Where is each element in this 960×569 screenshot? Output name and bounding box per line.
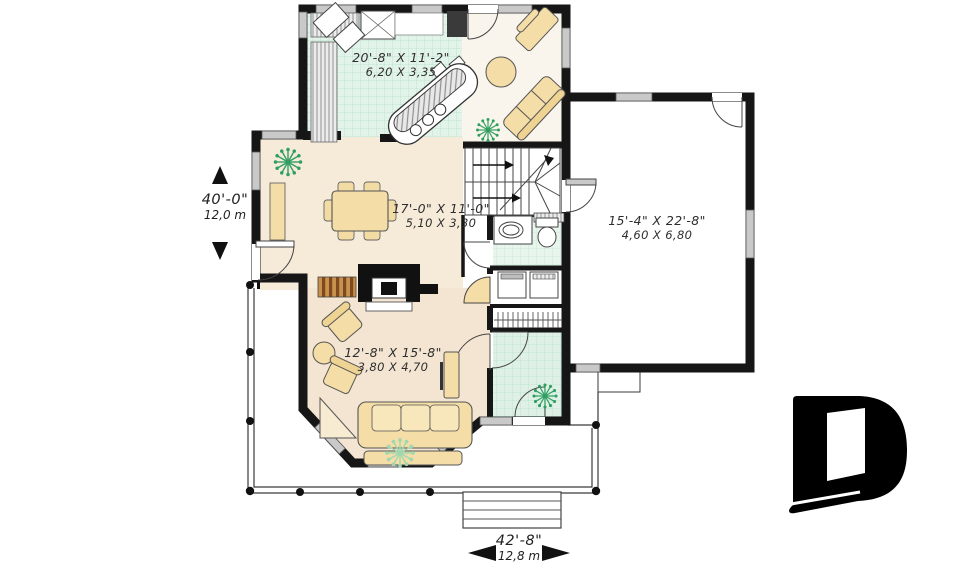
living-dim-imperial: 12'-8" X 15'-8" bbox=[344, 346, 442, 361]
hall-door-leaf bbox=[464, 277, 490, 303]
living-dimensions-label: 12'-8" X 15'-8" 3,80 X 4,70 bbox=[344, 346, 442, 374]
bathroom-door-swing bbox=[464, 242, 490, 268]
bathroom bbox=[494, 213, 564, 247]
dining-table-set bbox=[324, 182, 396, 240]
garage-dim-metric: 4,60 X 6,80 bbox=[608, 229, 706, 243]
overall-depth-label: 40'-0" 12,0 m bbox=[202, 192, 249, 222]
front-steps bbox=[463, 492, 561, 528]
drummond-logo bbox=[789, 396, 907, 513]
firewood-storage bbox=[318, 277, 356, 297]
buffet bbox=[270, 183, 285, 240]
kitchen-counter-left bbox=[311, 42, 337, 142]
dining-dimensions-label: 17'-0" X 11'-0" 5,10 X 3,30 bbox=[392, 202, 490, 230]
floor-plan-drawing bbox=[0, 0, 960, 569]
garage-dim-imperial: 15'-4" X 22'-8" bbox=[608, 214, 706, 229]
overall-width-label: 42'-8" 12,8 m bbox=[496, 533, 543, 563]
toilet-bowl bbox=[538, 227, 556, 247]
depth-metric: 12,0 m bbox=[202, 208, 249, 222]
dining-dim-imperial: 17'-0" X 11'-0" bbox=[392, 202, 490, 217]
living-dim-metric: 3,80 X 4,70 bbox=[344, 361, 442, 375]
kitchen-dimensions-label: 20'-8" X 11'-2" 6,20 X 3,35 bbox=[352, 51, 450, 79]
closet-hangers bbox=[494, 312, 562, 328]
round-table bbox=[486, 57, 516, 87]
width-metric: 12,8 m bbox=[496, 549, 543, 563]
laundry-appliances bbox=[498, 272, 558, 298]
living-sofa bbox=[358, 402, 472, 448]
toilet-tank bbox=[536, 218, 558, 227]
depth-imperial: 40'-0" bbox=[202, 192, 249, 208]
width-imperial: 42'-8" bbox=[496, 533, 543, 549]
floor-plan-canvas: 20'-8" X 11'-2" 6,20 X 3,35 17'-0" X 11'… bbox=[0, 0, 960, 569]
garage-dimensions-label: 15'-4" X 22'-8" 4,60 X 6,80 bbox=[608, 214, 706, 242]
tv-stand bbox=[444, 352, 459, 398]
dining-dim-metric: 5,10 X 3,30 bbox=[392, 217, 490, 231]
kitchen-dim-metric: 6,20 X 3,35 bbox=[352, 66, 450, 80]
kitchen-dim-imperial: 20'-8" X 11'-2" bbox=[352, 51, 450, 66]
